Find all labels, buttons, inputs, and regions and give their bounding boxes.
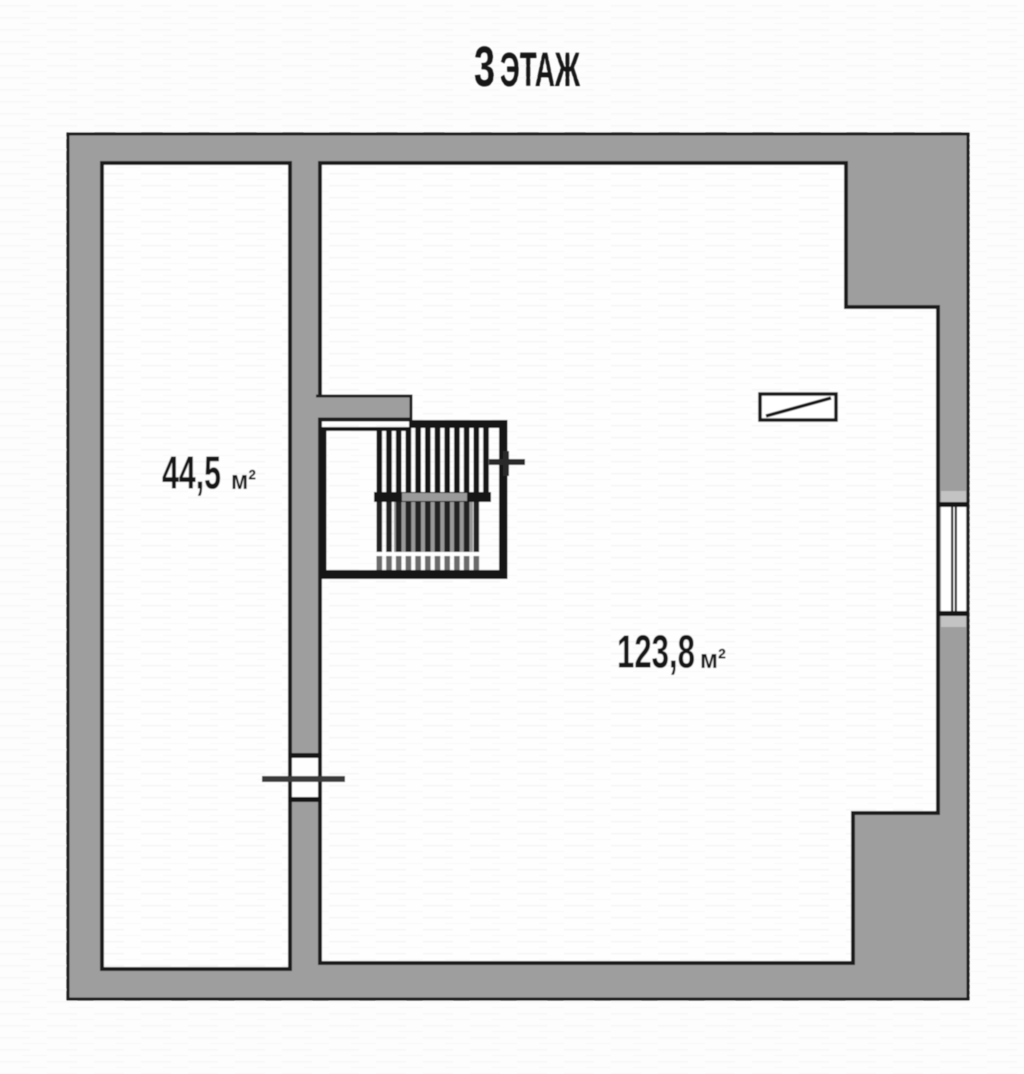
svg-text:44,5: 44,5 [162,447,221,499]
svg-text:123,8: 123,8 [617,626,695,678]
svg-text:м²: м² [700,644,726,674]
svg-text:м²: м² [231,465,256,495]
svg-text:ЭТАЖ: ЭТАЖ [500,44,580,97]
svg-text:3: 3 [474,35,495,99]
